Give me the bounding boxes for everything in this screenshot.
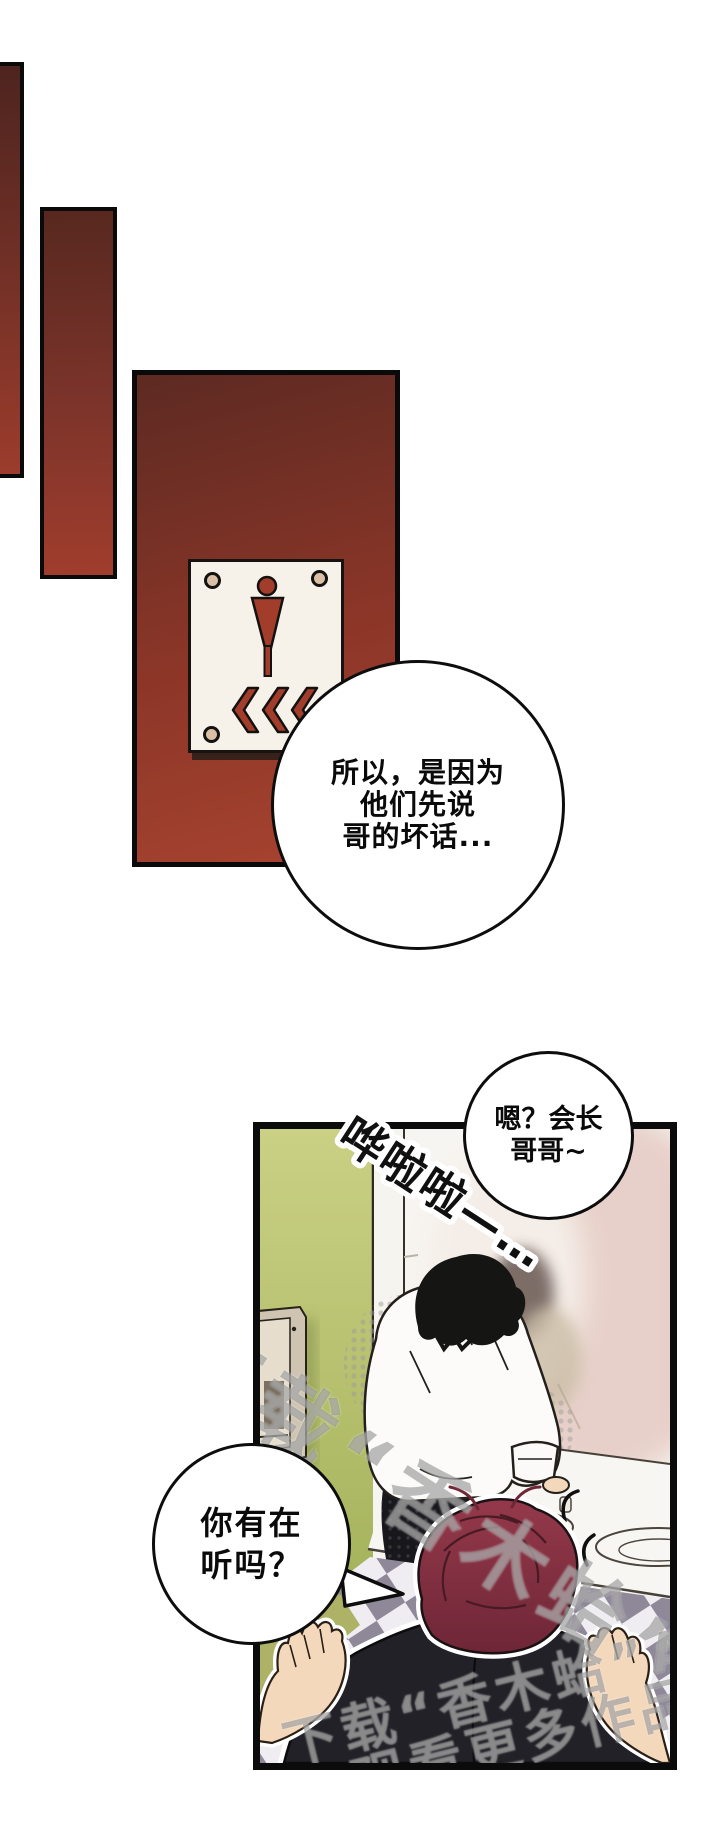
standing-man-hand <box>543 1477 569 1493</box>
bubble-3-line-2: 听吗？ <box>200 1544 302 1586</box>
bathroom-panel: 下载“香木蛤”APP 下载“香木蛤”APP 观看更多作品 <box>253 1122 677 1770</box>
red-panel-1 <box>0 62 24 478</box>
standing-man-cuff <box>512 1442 558 1482</box>
male-figure-icon <box>252 577 283 676</box>
bathroom-scene <box>260 1129 670 1763</box>
speech-bubble-2: 嗯？会长 哥哥~ <box>463 1051 634 1220</box>
comic-page: 下载“香木蛤”APP 下载“香木蛤”APP 观看更多作品 哗啦啦—… 所以，是因… <box>0 0 720 1821</box>
red-panel-2 <box>40 207 117 579</box>
bubble-2-line-1: 嗯？会长 <box>495 1104 603 1136</box>
bubble-1-line-1: 所以，是因为 <box>331 757 505 789</box>
speech-bubble-3: 你有在 听吗？ <box>152 1443 351 1645</box>
bubble-1-line-3: 哥的坏话... <box>331 821 505 853</box>
sign-screw-icon <box>203 726 220 743</box>
speech-bubble-1: 所以，是因为 他们先说 哥的坏话... <box>271 660 565 950</box>
bubble-2-line-2: 哥哥~ <box>495 1136 603 1168</box>
sign-screw-icon <box>311 570 328 587</box>
bubble-3-line-1: 你有在 <box>200 1502 302 1544</box>
bubble-1-line-2: 他们先说 <box>331 789 505 821</box>
sign-screw-icon <box>204 572 221 589</box>
